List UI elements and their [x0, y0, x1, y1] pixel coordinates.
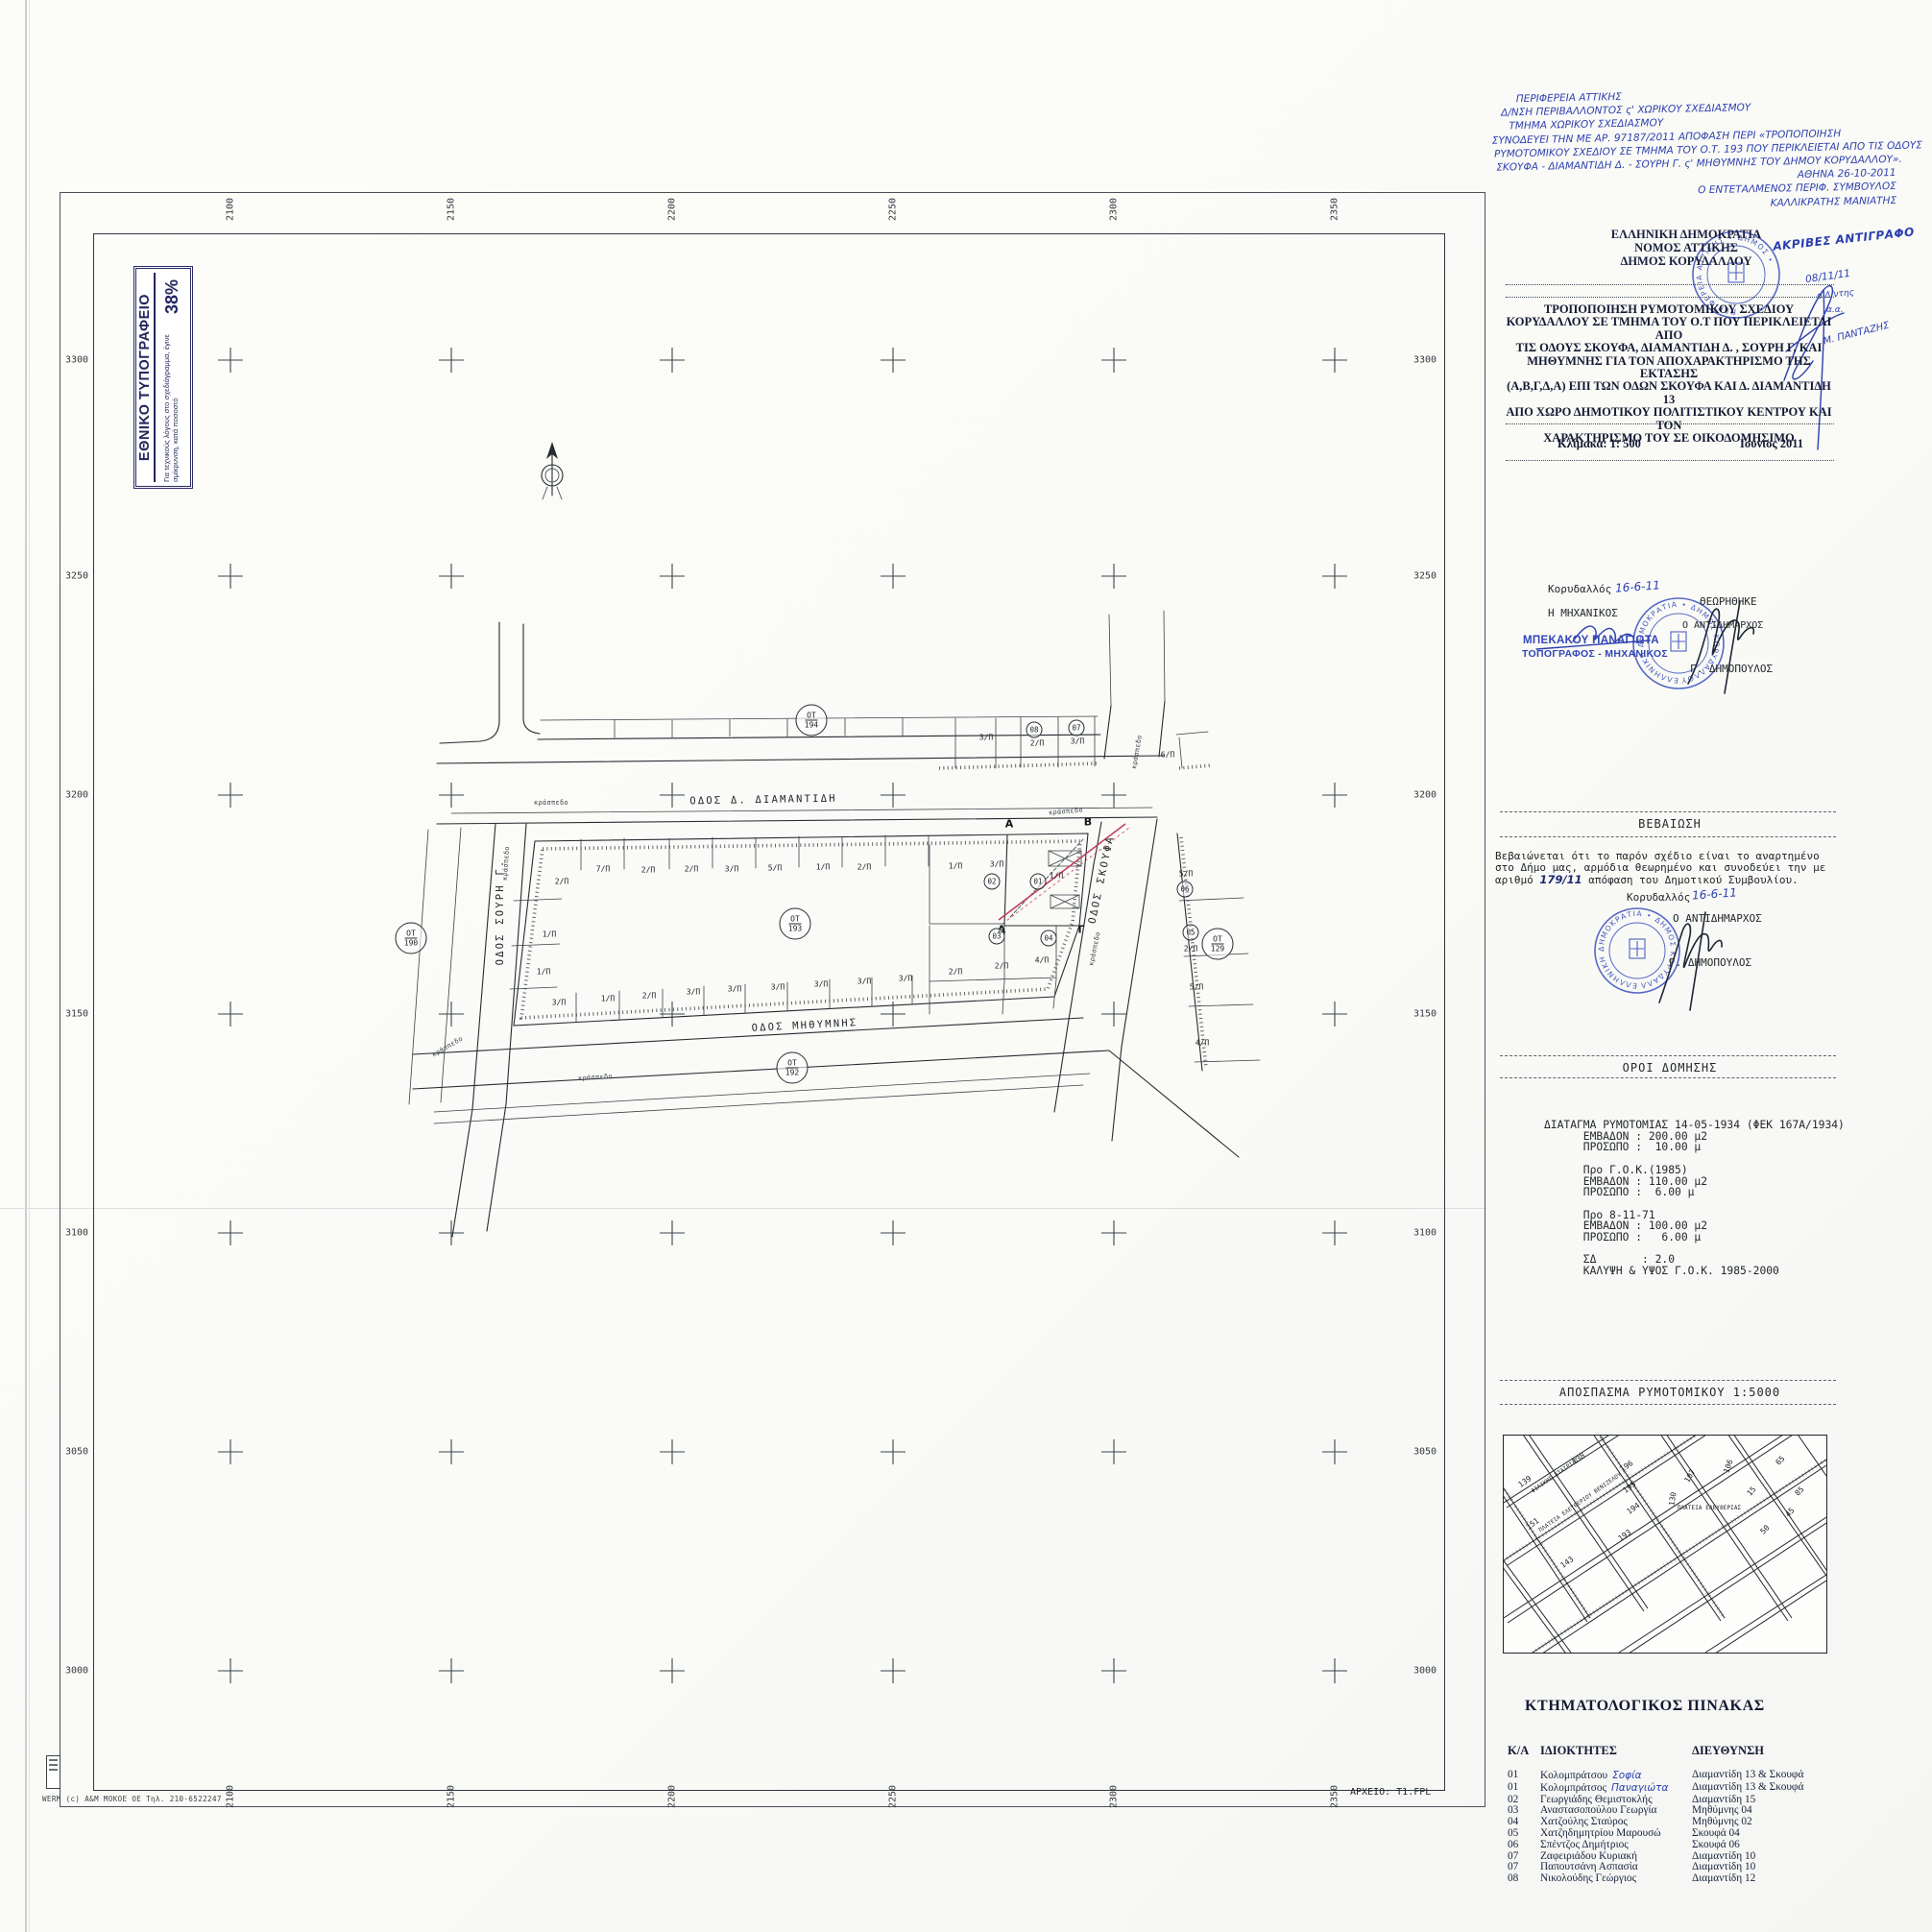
doc-title-line: ΤΡΟΠΟΠΟΙΗΣΗ ΡΥΜΟΤΟΜΙΚΟΥ ΣΧΕΔΙΟΥ [1503, 303, 1835, 316]
owner-number-badge: 05 [1183, 925, 1199, 941]
owner-number-badge: 06 [1177, 881, 1194, 898]
lot-code-label: 2/Π [555, 878, 568, 886]
block-ot-badge: ΟΤ194 [796, 705, 828, 737]
lot-code-label: 4/Π [1195, 1039, 1209, 1048]
block-ot-badge: ΟΤ192 [777, 1052, 809, 1084]
engineer-stamp-title: ΤΟΠΟΓΡΑΦΟΣ - ΜΗΧΑΝΙΚΟΣ [1522, 648, 1668, 660]
cadastral-row: 05Χατζηδημητρίου ΜαρουσώΣκουφά 04 [1508, 1828, 1853, 1840]
cad-address: Σκουφά 04 [1692, 1828, 1853, 1840]
boundary-point-label: Α [1005, 818, 1014, 831]
deputy-role-label: Ο ΑΝΤΙΔΗΜΑΡΧΟΣ [1682, 620, 1763, 631]
owner-number-badge: 07 [1069, 720, 1085, 737]
boundary-point-label: Β [1084, 816, 1092, 829]
building-terms-text: ΔΙΑΤΑΓΜΑ ΡΥΜΟΤΟΜΙΑΣ 14-05-1934 (ΦΕΚ 167Α… [1544, 1120, 1845, 1277]
grid-easting-label: 2350 [1330, 198, 1340, 221]
lot-code-label: 3/Π [728, 985, 741, 994]
cadastral-table-rows: 01ΚολομπράτσουΣοφίαΔιαμαντίδη 13 & Σκουφ… [1508, 1770, 1853, 1885]
grid-northing-label: 3250 [65, 571, 88, 582]
cad-owner: ΚολομπράτσουΣοφία [1540, 1770, 1692, 1782]
archive-note: ΑΡΧΕΙΟ: Τ1.FPL [1350, 1787, 1431, 1798]
doc-title-line: ΑΠΟ ΧΩΡΟ ΔΗΜΟΤΙΚΟΥ ΠΟΛΙΤΙΣΤΙΚΟΥ ΚΕΝΤΡΟΥ … [1503, 406, 1835, 432]
grid-northing-label: 3100 [1413, 1228, 1437, 1239]
lot-code-label: 3/Π [857, 978, 871, 986]
ot-prefix: ΟΤ [404, 929, 418, 938]
printing-office-percent: 38% [162, 279, 182, 314]
grid-northing-label: 3250 [1413, 571, 1437, 582]
handwritten-approval-note: ΠΕΡΙΦΕΡΕΙΑ ΑΤΤΙΚΗΣΔ/ΝΣΗ ΠΕΡΙΒΑΛΛΟΝΤΟΣ ς'… [1491, 84, 1932, 215]
lot-code-label: 1/Π [816, 863, 830, 872]
doc-title-line: ΤΙΣ ΟΔΟΥΣ ΣΚΟΥΦΑ, ΔΙΑΜΑΝΤΙΔΗ Δ. , ΣΟΥΡΗ … [1503, 342, 1835, 354]
lot-code-label: 2/Π [995, 962, 1008, 971]
cadastral-row: 01ΚολομπράτσουΣοφίαΔιαμαντίδη 13 & Σκουφ… [1508, 1770, 1853, 1782]
engineer-place-label: Κορυδαλλός [1548, 583, 1611, 595]
owner-number-badge: 04 [1041, 930, 1057, 947]
grid-northing-label: 3300 [65, 355, 88, 366]
grid-northing-label: 3200 [65, 790, 88, 801]
separator [1500, 1404, 1836, 1405]
gov-header-line: ΔΗΜΟΣ ΚΟΡΥΔΑΛΛΟΥ [1536, 255, 1836, 269]
grid-easting-label: 2250 [888, 1785, 899, 1808]
lot-code-label: 3/Π [979, 734, 993, 742]
building-terms-title: ΟΡΟΙ ΔΟΜΗΣΗΣ [1506, 1061, 1834, 1075]
cadastral-row: 01ΚολομπράτσοςΠαναγιώταΔιαμαντίδη 13 & Σ… [1508, 1782, 1853, 1795]
cad-ka: 06 [1508, 1840, 1540, 1851]
ot-number: 194 [805, 720, 818, 730]
lot-code-label: 2/Π [685, 865, 698, 874]
excerpt-title: ΑΠΟΣΠΑΣΜΑ ΡΥΜΟΤΟΜΙΚΟΥ 1:5000 [1506, 1386, 1834, 1399]
separator [1500, 811, 1836, 812]
grid-easting-label: 2100 [226, 1785, 236, 1808]
map-inner-frame [93, 233, 1445, 1791]
lot-code-label: 2/Π [641, 866, 655, 875]
curb-label: κράσπεδο [534, 799, 568, 807]
cad-owner: Νικολούδης Γεώργιος [1540, 1873, 1692, 1885]
separator [1506, 423, 1834, 424]
printing-office-title: ΕΘΝΙΚΟ ΤΥΠΟΓΡΑΦΕΙΟ [137, 273, 156, 482]
grid-easting-label: 2200 [667, 1785, 678, 1808]
lot-code-label: 3/Π [771, 983, 785, 992]
lot-code-label: 1/Π [543, 930, 556, 939]
cadastral-row: 06Σπέντζος ΔημήτριοςΣκουφά 06 [1508, 1840, 1853, 1851]
cad-address: Διαμαντίδη 12 [1692, 1873, 1853, 1885]
col-ka: Κ/Α [1508, 1744, 1540, 1758]
lot-code-label: 5/Π [768, 864, 782, 873]
grid-northing-label: 3150 [1413, 1009, 1437, 1020]
grid-northing-label: 3000 [1413, 1666, 1437, 1677]
owner-number-badge: 03 [989, 929, 1005, 945]
certification-paragraph: Βεβαιώνεται ότι το παρόν σχέδιο είναι το… [1495, 851, 1841, 886]
lot-code-label: 5/Π [1179, 870, 1193, 879]
lot-code-label: 1/Π [1050, 872, 1063, 881]
separator [1500, 1077, 1836, 1078]
separator [1500, 836, 1836, 837]
ot-prefix: ΟΤ [785, 1058, 799, 1068]
printer-footer-note: WERM (c) A&M MOKOE OE Τηλ. 210-6522247 [42, 1795, 222, 1803]
grid-northing-label: 3200 [1413, 790, 1437, 801]
grid-easting-label: 2350 [1330, 1785, 1340, 1808]
lot-code-label: 3/Π [725, 865, 738, 874]
grid-northing-label: 3100 [65, 1228, 88, 1239]
ot-number: 190 [404, 938, 418, 948]
lot-code-label: 1/Π [949, 862, 962, 871]
cad-ka: 05 [1508, 1828, 1540, 1840]
separator [1506, 297, 1834, 298]
grid-northing-label: 3050 [1413, 1447, 1437, 1458]
reviewed-label: ΘΕΩΡΗΘΗΚΕ [1700, 595, 1757, 608]
deputy-name-label: Γ. ΔΗΜΟΠΟΥΛΟΣ [1690, 663, 1773, 675]
grid-easting-label: 2250 [888, 198, 899, 221]
grid-easting-label: 2150 [447, 198, 457, 221]
ot-number: 192 [785, 1068, 799, 1077]
cad-ka: 01 [1508, 1770, 1540, 1782]
ot-prefix: ΟΤ [788, 914, 802, 924]
cadastral-row: 08Νικολούδης ΓεώργιοςΔιαμαντίδη 12 [1508, 1873, 1853, 1885]
cad-owner: Σπέντζος Δημήτριος [1540, 1840, 1692, 1851]
doc-title-line: ΚΟΡΥΔΑΛΛΟΥ ΣΕ ΤΜΗΜΑ ΤΟΥ Ο.Τ ΠΟΥ ΠΕΡΙΚΛΕΙ… [1503, 316, 1835, 342]
lot-code-label: 2/Π [857, 863, 871, 872]
owner-number-badge: 08 [1026, 722, 1043, 738]
owner-number-badge: 02 [984, 874, 1001, 890]
margin-label-box [46, 1755, 60, 1789]
stamp-role-handwritten: ο Δ/ντης [1817, 288, 1855, 302]
cert-role-label: Ο ΑΝΤΙΔΗΜΑΡΧΟΣ [1673, 912, 1762, 925]
cert-place-label: Κορυδαλλός [1627, 891, 1690, 904]
lot-code-label: 2/Π [1184, 945, 1197, 954]
separator [1506, 460, 1834, 461]
lot-code-label: 3/Π [552, 999, 566, 1007]
block-ot-badge: ΟΤ129 [1202, 929, 1234, 960]
cad-owner: Χατζηδημητρίου Μαρουσώ [1540, 1828, 1692, 1840]
cad-address: Διαμαντίδη 13 & Σκουφά [1692, 1770, 1853, 1782]
cad-owner-handwritten: Παναγιώτα [1611, 1782, 1668, 1794]
doc-title-line: ΜΗΘΥΜΝΗΣ ΓΙΑ ΤΟΝ ΑΠΟΧΑΡΑΚΤΗΡΙΣΜΟ ΤΗΣ ΕΚΤ… [1503, 355, 1835, 381]
cadastral-table-title: ΚΤΗΜΑΤΟΛΟΓΙΚΟΣ ΠΙΝΑΚΑΣ [1525, 1698, 1765, 1715]
col-owners: ΙΔΙΟΚΤΗΤΕΣ [1540, 1744, 1692, 1758]
grid-easting-label: 2200 [667, 198, 678, 221]
separator [1500, 1380, 1836, 1381]
engineer-role-label: Η ΜΗΧΑΝΙΚΟΣ [1548, 607, 1618, 619]
national-printing-office-stamp: ΕΘΝΙΚΟ ΤΥΠΟΓΡΑΦΕΙΟ Για τεχνικούς λόγους … [133, 266, 193, 489]
excerpt-street-pattern [1504, 1436, 1826, 1653]
drawing-sheet: ΕΘΝΙΚΟ ΤΥΠΟΓΡΑΦΕΙΟ Για τεχνικούς λόγους … [0, 0, 1932, 1932]
cad-address: Διαμαντίδη 13 & Σκουφά [1692, 1782, 1853, 1795]
lot-code-label: 5/Π [1190, 983, 1203, 992]
excerpt-block-label: ΠΛΑΤΕΙΑ ΕΛΕΥΘΕΡΙΑΣ [1678, 1506, 1741, 1511]
printing-office-note: Για τεχνικούς λόγους στο σχεδιάγραμμα, έ… [163, 319, 180, 482]
grid-northing-label: 3050 [65, 1447, 88, 1458]
grid-northing-label: 3000 [65, 1666, 88, 1677]
stamp-date-handwritten: 08/11/11 [1804, 268, 1850, 285]
ot-number: 193 [788, 924, 802, 933]
lot-code-label: 2/Π [642, 992, 656, 1001]
grid-northing-label: 3150 [65, 1009, 88, 1020]
cad-owner: ΚολομπράτσοςΠαναγιώτα [1540, 1782, 1692, 1795]
block-ot-badge: ΟΤ190 [396, 923, 427, 954]
scale-label: Κλίμακα: 1: 500 [1558, 437, 1641, 451]
cad-owner-handwritten: Σοφία [1612, 1770, 1641, 1781]
lot-code-label: 3/Π [687, 988, 700, 997]
lot-code-label: 2/Π [1030, 739, 1044, 748]
cadastral-table-header: Κ/Α ΙΔΙΟΚΤΗΤΕΣ ΔΙΕΥΘΥΝΣΗ [1508, 1744, 1842, 1758]
deputy-mayor-signature-1 [1688, 601, 1753, 693]
excerpt-mini-map: 139151ΦΙΛΙΚΗΣ ΕΤΑΙΡΙΑΣ138ΠΛΑΤΕΙΑ ΕΛΕΥΘΕΡ… [1503, 1435, 1827, 1654]
owner-number-badge: 01 [1030, 874, 1047, 890]
col-address: ΔΙΕΥΘΥΝΣΗ [1692, 1744, 1842, 1758]
doc-title-line: (Α,Β,Γ,Δ,Α) ΕΠΙ ΤΩΝ ΟΔΩΝ ΣΚΟΥΦΑ ΚΑΙ Δ. Δ… [1503, 380, 1835, 406]
block-ot-badge: ΟΤ193 [780, 908, 811, 940]
boundary-point-label: Γ [1077, 924, 1084, 936]
cad-ka: 01 [1508, 1782, 1540, 1795]
date-label: Ιούνιος 2011 [1740, 437, 1803, 451]
separator [1500, 1055, 1836, 1056]
lot-code-label: 3/Π [1071, 737, 1084, 746]
decision-number-handwritten: 179/11 [1539, 873, 1582, 886]
lot-code-label: 1/Π [537, 968, 550, 977]
ot-prefix: ΟΤ [805, 711, 818, 720]
cad-ka: 08 [1508, 1873, 1540, 1885]
grid-easting-label: 2150 [447, 1785, 457, 1808]
ot-number: 129 [1211, 944, 1224, 954]
cad-address: Σκουφά 06 [1692, 1840, 1853, 1851]
grid-easting-label: 2300 [1109, 1785, 1120, 1808]
lot-code-label: 7/Π [596, 865, 610, 874]
lot-code-label: 4/Π [1035, 956, 1049, 965]
scan-edge-line-2 [29, 0, 30, 1932]
lot-code-label: 3/Π [899, 975, 912, 983]
grid-northing-label: 3300 [1413, 355, 1437, 366]
engineer-stamp-name: ΜΠΕΚΑΚΟΥ ΠΑΝΑΓΙΩΤΑ [1523, 635, 1659, 646]
ot-prefix: ΟΤ [1211, 934, 1224, 944]
cert-name-label: Γ. ΔΗΜΟΠΟΥΛΟΣ [1669, 956, 1751, 969]
lot-code-label: 1/Π [601, 995, 615, 1003]
lot-code-label: 6/Π [1161, 751, 1174, 760]
cert-date-handwritten: 16-6-11 [1692, 885, 1738, 902]
separator [1506, 284, 1834, 285]
grid-easting-label: 2100 [226, 198, 236, 221]
lot-code-label: 3/Π [814, 980, 828, 989]
lot-code-label: 3/Π [990, 860, 1003, 869]
grid-easting-label: 2300 [1109, 198, 1120, 221]
lot-code-label: 2/Π [949, 968, 962, 977]
engineer-date-handwritten: 16-6-11 [1615, 578, 1661, 594]
certification-title: ΒΕΒΑΙΩΣΗ [1506, 817, 1834, 831]
scan-edge-line [25, 0, 27, 1932]
